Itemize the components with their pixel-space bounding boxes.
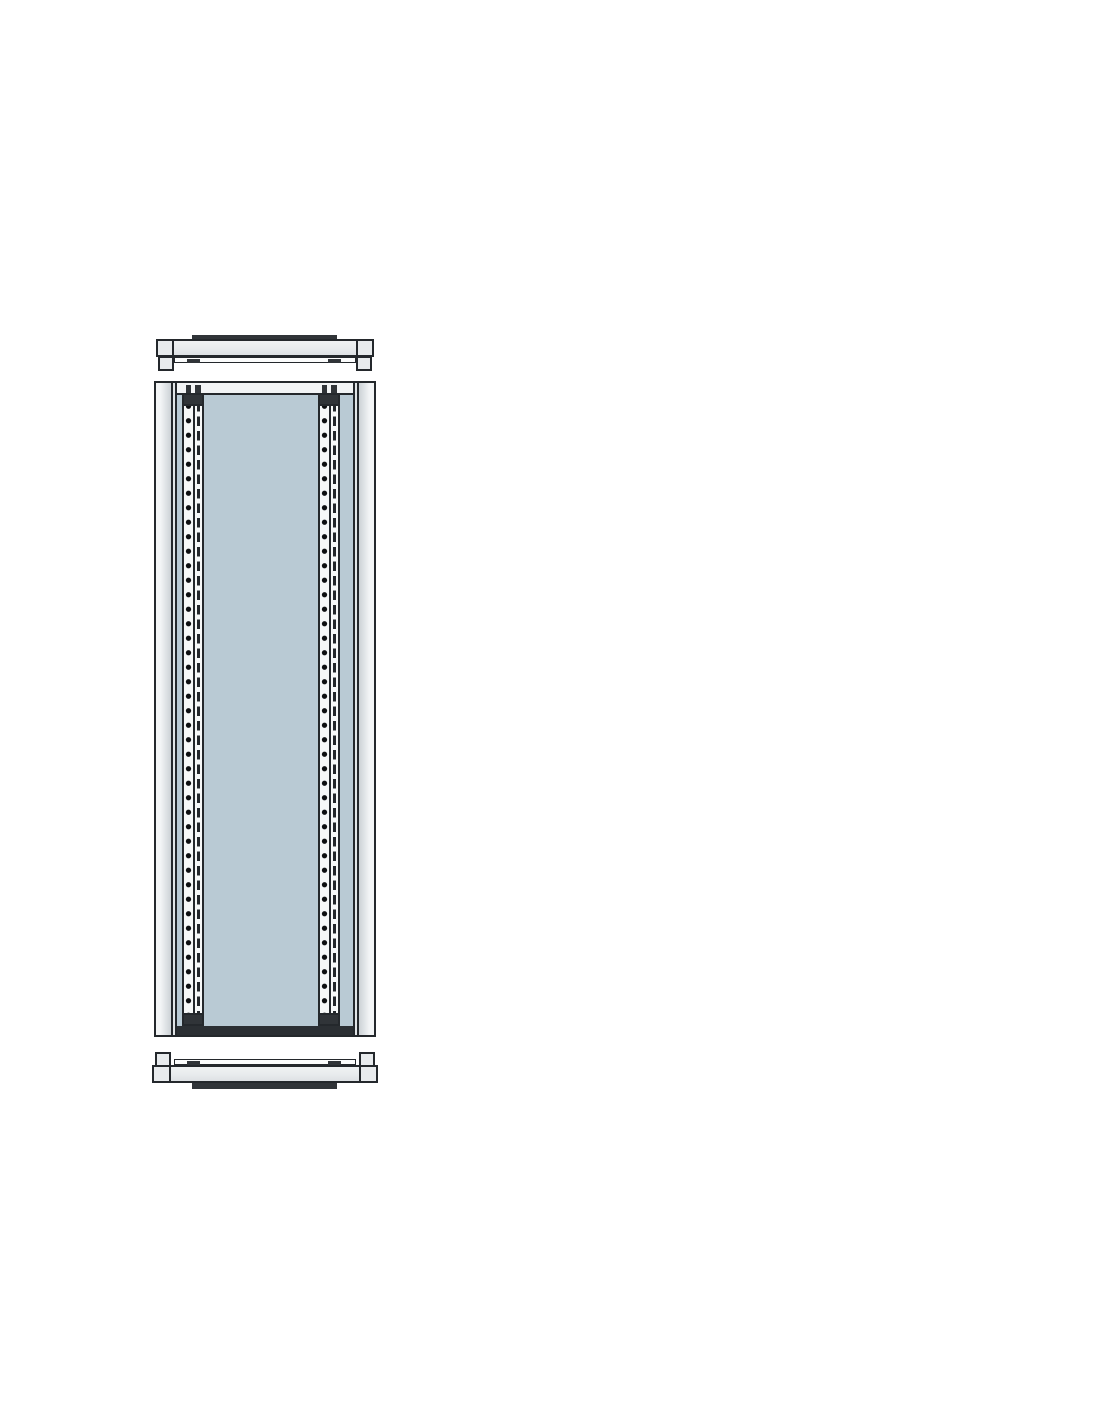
rail-top-cap <box>182 393 204 406</box>
left-upright-edge <box>171 383 177 1035</box>
top-member-right-bracket <box>356 356 372 371</box>
bottom-member-bar <box>152 1065 378 1083</box>
fastener-clip <box>328 359 341 363</box>
rail-holes-pattern <box>320 395 329 1024</box>
rail-slots-column <box>195 395 202 1024</box>
main-frame-panel <box>154 381 376 1037</box>
left-mounting-rail <box>182 393 204 1026</box>
right-mounting-rail <box>318 393 340 1026</box>
rail-bottom-foot <box>182 1013 204 1026</box>
bottom-cross-member <box>152 1052 378 1090</box>
bottom-member-left-endcap <box>152 1065 171 1083</box>
fastener-clip <box>328 1061 341 1065</box>
right-upright-face <box>359 383 374 1035</box>
fastener-clip <box>187 1061 200 1065</box>
rail-holes-pattern <box>184 395 193 1024</box>
top-member-mounting-strip <box>174 356 356 363</box>
top-cross-member <box>153 335 377 372</box>
right-upright-edge <box>353 383 359 1035</box>
bottom-rail-seat <box>177 1026 353 1035</box>
top-member-left-endcap <box>156 339 174 357</box>
top-member-right-endcap <box>356 339 374 357</box>
rail-slots-column <box>331 395 338 1024</box>
bottom-member-flange <box>192 1083 337 1089</box>
left-upright-face <box>156 383 171 1035</box>
top-member-left-bracket <box>158 356 174 371</box>
bottom-member-mounting-strip <box>174 1059 356 1066</box>
rail-slots-pattern <box>197 395 200 1024</box>
rail-top-cap <box>318 393 340 406</box>
fastener-clip <box>187 359 200 363</box>
page: { "figure": { "kind": "technical line dr… <box>0 0 1100 1422</box>
rail-bottom-foot <box>318 1013 340 1026</box>
rail-top-tabs <box>186 385 201 393</box>
top-member-bar <box>156 339 374 357</box>
bottom-member-right-endcap <box>359 1065 378 1083</box>
rail-slots-pattern <box>333 395 336 1024</box>
rail-top-tabs <box>322 385 337 393</box>
